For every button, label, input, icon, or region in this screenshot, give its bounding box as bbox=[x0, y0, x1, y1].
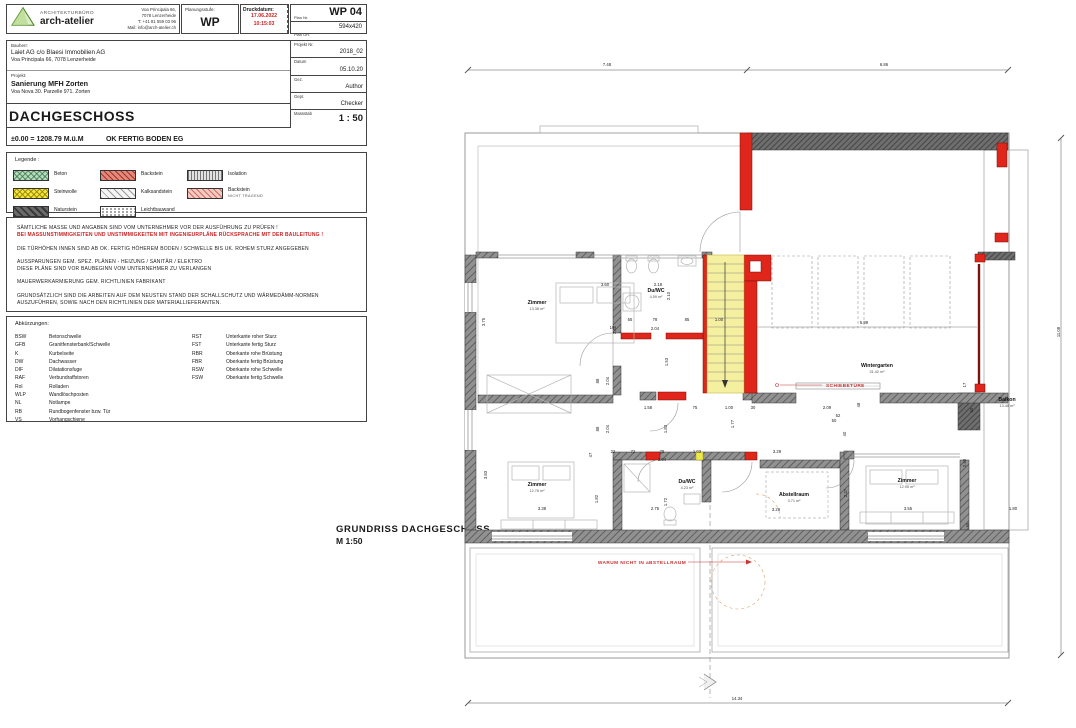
abbr-term: Vorhangschiene bbox=[49, 416, 85, 424]
dimension-label: 10 bbox=[610, 325, 615, 330]
room-name: Wintergarten bbox=[861, 363, 893, 369]
abbr-row: K Kurbelseite bbox=[15, 350, 110, 358]
dimension-label: 1.83 bbox=[663, 424, 668, 433]
abbr-row: DW Dachwasser bbox=[15, 358, 110, 366]
dimension-label: 3.60 bbox=[601, 282, 610, 287]
legend-box: Legende : Beton Backstein bbox=[6, 152, 367, 213]
bauherr-label: Bauherr: bbox=[11, 43, 286, 48]
dimension-labels: 7.486.8611.0814.343.602.183.752.412.1055… bbox=[481, 62, 1061, 701]
plan-nr-label: Plan Nr. bbox=[294, 15, 308, 20]
plan-gr-value: 594x420 bbox=[339, 24, 362, 30]
floor-plan-svg: SCHIEBETÜRE WARUM NICHT IN aBSTELLRAUM 7… bbox=[456, 50, 1076, 728]
dimension-label: 85 bbox=[685, 317, 690, 322]
elevation-note: OK FERTIG BODEN EG bbox=[106, 132, 183, 143]
bauherr-address: Voa Principala 66, 7078 Lenzerheide bbox=[11, 57, 286, 63]
abbr-code: FSW bbox=[192, 374, 226, 382]
material-swatch bbox=[13, 188, 49, 199]
room-label: Zimmer13.38 m² bbox=[528, 300, 547, 311]
dimension-label: 2.75 bbox=[651, 506, 660, 511]
dimension-label: 47 bbox=[588, 452, 593, 457]
projekt-section: Projekt: Sanierung MFH Zorten Voa Nova 3… bbox=[7, 71, 290, 104]
legend-label-text: Kalksandstein bbox=[141, 190, 172, 196]
abbr-code: RBR bbox=[192, 350, 226, 358]
meta-row: Gez. Author bbox=[291, 76, 367, 93]
bauherr-section: Bauherr: Laiet AG c/o Blaesi Immobilien … bbox=[7, 41, 290, 71]
meta-value: Checker bbox=[341, 101, 363, 107]
note-line: MAUERWERKARMIERUNG GEM. RICHTLINIEN FABR… bbox=[17, 279, 356, 286]
legend-label-text: Leichtbauwand bbox=[141, 208, 175, 214]
dimension-label: 2.40 bbox=[962, 458, 967, 467]
dimension-label: 7.48 bbox=[603, 62, 612, 67]
firm-title-cell: ARCHITEKTURBÜRO arch-atelier Voa Princip… bbox=[6, 4, 180, 34]
abbr-term: Oberkante fertig Brüstung bbox=[226, 358, 283, 366]
dimension-label: 2.04 bbox=[651, 326, 660, 331]
abbr-term: Verbundraffstoren bbox=[49, 374, 89, 382]
dimension-label: 3.55 bbox=[904, 506, 913, 511]
abbr-term: Unterkante roher Sturz bbox=[226, 333, 277, 341]
abbr-row: FBR Oberkante fertig Brüstung bbox=[192, 358, 283, 366]
elevation-row: ±0.00 = 1208.79 M.ü.M OK FERTIG BODEN EG bbox=[7, 128, 368, 147]
dimension-label: 2.04 bbox=[658, 457, 667, 462]
dimension-label: 1.00 bbox=[715, 317, 724, 322]
abbr-term: Granitfensterbank/Schwelle bbox=[49, 341, 110, 349]
abbr-code: RSW bbox=[192, 366, 226, 374]
note-line: DIESE PLÄNE SIND VOR BAUBEGINN VOM UNTER… bbox=[17, 266, 356, 273]
material-swatch bbox=[187, 170, 223, 181]
massstab-value: 1 : 50 bbox=[339, 113, 363, 124]
dimension-label: 3.29 bbox=[772, 507, 781, 512]
dimension-label: 1.00 bbox=[725, 405, 734, 410]
elevation-value: ±0.00 = 1208.79 M.ü.M bbox=[11, 132, 84, 143]
room-label: Wintergarten31.42 m² bbox=[861, 363, 893, 374]
floor-title-row: DACHGESCHOSS bbox=[7, 104, 290, 128]
plan-nr-value: WP 04 bbox=[329, 6, 362, 18]
room-name: Du/WC bbox=[648, 288, 665, 294]
abbr-term: Kurbelseite bbox=[49, 350, 74, 358]
abbr-term: Oberkante rohe Schwelle bbox=[226, 366, 282, 374]
abbr-code: DIF bbox=[15, 366, 49, 374]
room-area: 12.95 m² bbox=[900, 485, 916, 489]
legend-item: Backstein bbox=[100, 166, 187, 184]
abbr-code: FST bbox=[192, 341, 226, 349]
room-area: 3.71 m² bbox=[788, 499, 802, 503]
dimension-label: 3.83 bbox=[483, 470, 488, 479]
planungsstufe-cell: Planungsstufe: WP bbox=[181, 4, 239, 34]
note-line: BEI MASSUNSTIMMIGKEITEN UND UNSTIMMIGKEI… bbox=[17, 232, 356, 239]
dimension-label: 22 bbox=[611, 449, 616, 454]
abbr-row: BSW Betonschwelle bbox=[15, 333, 110, 341]
abbr-row: Rol Rolladen bbox=[15, 383, 110, 391]
abbr-column-left: BSW Betonschwelle GFB Granitfensterbank/… bbox=[15, 333, 110, 424]
dimension-label: 5.99 bbox=[860, 320, 869, 325]
firm-name-block: ARCHITEKTURBÜRO arch-atelier bbox=[40, 11, 94, 27]
legend-label: Naturstein bbox=[54, 208, 77, 214]
planungsstufe-value: WP bbox=[185, 15, 235, 29]
dimension-label: 48 bbox=[856, 402, 861, 407]
room-name: Zimmer bbox=[528, 300, 547, 306]
dimension-label: 75 bbox=[693, 405, 698, 410]
balcony-outline bbox=[984, 150, 1028, 530]
druckdatum-cell: Druckdatum: 17.06.2022 10:15:03 bbox=[240, 4, 289, 34]
dimension-label: 3.75 bbox=[481, 317, 486, 326]
legend-label-text: Backstein bbox=[141, 172, 163, 178]
legend-label: Backstein NICHT TRAGEND bbox=[228, 188, 263, 198]
massstab-cell: Massstab 1 : 50 bbox=[291, 110, 367, 127]
room-name: Zimmer bbox=[528, 482, 547, 488]
abbr-term: Rolladen bbox=[49, 383, 69, 391]
legend-label-text: Beton bbox=[54, 172, 67, 178]
abbr-code: Rol bbox=[15, 383, 49, 391]
abbr-row: VS Vorhangschiene bbox=[15, 416, 110, 424]
dimension-label: 2.04 bbox=[605, 376, 610, 385]
shaft-opening bbox=[750, 261, 761, 272]
abbr-code: K bbox=[15, 350, 49, 358]
note-line: AUSZUFÜHREN, SOWIE NACH DEN RICHTLINIEN … bbox=[17, 300, 356, 307]
dimension-label: 78 bbox=[660, 449, 665, 454]
firm-address: Voa Principala 66, 7078 Lenzerheide T: +… bbox=[127, 7, 176, 30]
skylight-grid bbox=[772, 256, 950, 328]
dimension-label: 3.29 bbox=[773, 449, 782, 454]
meta-label: Gez. bbox=[294, 77, 303, 82]
abbr-code: VS bbox=[15, 416, 49, 424]
abbr-term: Dachwasser bbox=[49, 358, 77, 366]
dimension-label: 2.18 bbox=[654, 282, 663, 287]
note-line: AUSSPARUNGEN GEM. SPEZ. PLÄNEN - HEIZUNG… bbox=[17, 259, 356, 266]
druckdatum-time: 10:15:03 bbox=[243, 21, 285, 29]
meta-label: Datum bbox=[294, 59, 306, 64]
plan-number-cell: Plan Nr. WP 04 Plan GR. 594x420 bbox=[290, 4, 367, 34]
projekt-label: Projekt: bbox=[11, 73, 286, 78]
legend-label-text: Steinwolle bbox=[54, 190, 77, 196]
room-label: Abstellraum3.71 m² bbox=[779, 492, 809, 503]
abbreviations-title: Abkürzungen: bbox=[7, 317, 366, 330]
dimension-label: 55 bbox=[628, 317, 633, 322]
legend-item: Steinwolle bbox=[13, 184, 100, 202]
material-swatch bbox=[100, 206, 136, 217]
abbr-row: RSW Oberkante rohe Schwelle bbox=[192, 366, 283, 374]
abbreviations-box: Abkürzungen: BSW Betonschwelle GFB Grani… bbox=[6, 316, 367, 422]
legend-label: Isolation bbox=[228, 172, 247, 178]
room-label: Zimmer12.76 m² bbox=[528, 482, 547, 493]
material-swatch bbox=[187, 188, 223, 199]
abbr-row: FSW Oberkante fertig Schwelle bbox=[192, 374, 283, 382]
meta-row: Gepr. Checker bbox=[291, 93, 367, 110]
room-name: Zimmer bbox=[898, 478, 917, 484]
notes-list: SÄMTLICHE MASSE UND ANGABEN SIND VOM UNT… bbox=[7, 218, 366, 314]
dimension-label: 88 bbox=[595, 426, 600, 431]
toilet bbox=[626, 256, 637, 261]
dimension-label: 1.72 bbox=[663, 497, 668, 506]
dimension-label: 52 bbox=[836, 413, 841, 418]
warum-label: WARUM NICHT IN aBSTELLRAUM bbox=[598, 560, 686, 566]
project-block: Bauherr: Laiet AG c/o Blaesi Immobilien … bbox=[6, 40, 367, 146]
meta-row: Datum 05.10.20 bbox=[291, 58, 367, 75]
abbr-row: NL Notlampe bbox=[15, 399, 110, 407]
legend-item: Beton bbox=[13, 166, 100, 184]
room-area: 4.59 m² bbox=[650, 295, 664, 299]
abbr-code: RST bbox=[192, 333, 226, 341]
abbr-code: BSW bbox=[15, 333, 49, 341]
room-label: Du/WC4.59 m² bbox=[648, 288, 665, 299]
dimension-label: 14.34 bbox=[732, 696, 743, 701]
dimension-label: 50 bbox=[832, 418, 837, 423]
dimension-label: 1.77 bbox=[730, 419, 735, 428]
dimension-label: 2.10 bbox=[666, 291, 671, 300]
room-area: 12.76 m² bbox=[530, 489, 546, 493]
note-line: GRUNDSÄTZLICH SIND DIE ARBEITEN AUF DEM … bbox=[17, 293, 356, 300]
meta-value: Author bbox=[345, 84, 363, 90]
dimension-lines bbox=[465, 67, 1064, 706]
legend-label: Steinwolle bbox=[54, 190, 77, 196]
firm-logo-icon bbox=[10, 6, 36, 33]
shower bbox=[623, 293, 641, 311]
projekt-name: Sanierung MFH Zorten bbox=[11, 79, 286, 88]
material-swatch bbox=[13, 170, 49, 181]
abbr-code: DW bbox=[15, 358, 49, 366]
dimension-label: 11.08 bbox=[1056, 326, 1061, 337]
abbr-term: Notlampe bbox=[49, 399, 70, 407]
dimension-label: 2.09 bbox=[823, 405, 832, 410]
dimension-label: 65 bbox=[965, 522, 970, 527]
dimension-label: 1.53 bbox=[664, 357, 669, 366]
firm-address-line: Mail: info@arch-atelier.ch bbox=[127, 25, 176, 31]
abbr-row: FST Unterkante fertig Sturz bbox=[192, 341, 283, 349]
material-swatch bbox=[100, 188, 136, 199]
abbr-row: GFB Granitfensterbank/Schwelle bbox=[15, 341, 110, 349]
abbr-row: WLP Wandlöschposten bbox=[15, 391, 110, 399]
dimension-label: 78 bbox=[653, 317, 658, 322]
schiebetuere-label: SCHIEBETÜRE bbox=[826, 382, 865, 389]
material-swatch bbox=[100, 170, 136, 181]
room-label: Zimmer12.95 m² bbox=[898, 478, 917, 489]
projekt-address: Voa Nova 30. Parzelle 971. Zorten bbox=[11, 89, 286, 95]
dimension-label: 72 bbox=[631, 449, 636, 454]
room-area: 13.48 m² bbox=[1000, 404, 1016, 408]
meta-value: 2018_02 bbox=[340, 49, 363, 55]
meta-rows: Projekt Nr. 2018_02 Datum 05.10.20 Gez. … bbox=[291, 41, 367, 110]
abbr-term: Wandlöschposten bbox=[49, 391, 89, 399]
abbr-term: Unterkante fertig Sturz bbox=[226, 341, 276, 349]
legend-item: Backstein NICHT TRAGEND bbox=[187, 184, 274, 202]
room-area: 13.38 m² bbox=[530, 307, 546, 311]
dimension-label: 40 bbox=[842, 431, 847, 436]
room-name: Du/WC bbox=[679, 479, 696, 485]
toilet bbox=[664, 507, 676, 521]
abbr-row: RB Rundbogenfenster bzw. Tür bbox=[15, 408, 110, 416]
abbr-code: RB bbox=[15, 408, 49, 416]
legend-label-text: Naturstein bbox=[54, 208, 77, 214]
abbr-code: RAF bbox=[15, 374, 49, 382]
naturstein-wall bbox=[747, 133, 1008, 150]
abbr-code: FBR bbox=[192, 358, 226, 366]
room-name: Abstellraum bbox=[779, 492, 809, 498]
abbr-term: Oberkante rohe Brüstung bbox=[226, 350, 282, 358]
legend-label: Leichtbauwand bbox=[141, 208, 175, 214]
dimension-label: 1.80 bbox=[1009, 506, 1018, 511]
abbr-code: GFB bbox=[15, 341, 49, 349]
abbr-row: DIF Dilatationsfuge bbox=[15, 366, 110, 374]
abbr-term: Dilatationsfuge bbox=[49, 366, 82, 374]
notes-box: SÄMTLICHE MASSE UND ANGABEN SIND VOM UNT… bbox=[6, 217, 367, 312]
note-line: DIE TÜRHÖHEN INNEN SIND AB OK. FERTIG HÖ… bbox=[17, 246, 356, 253]
firm-name: arch-atelier bbox=[40, 16, 94, 27]
bauherr-name: Laiet AG c/o Blaesi Immobilien AG bbox=[11, 49, 286, 56]
room-area: 31.42 m² bbox=[870, 370, 886, 374]
room-area: 4.23 m² bbox=[681, 486, 695, 490]
abbr-code: WLP bbox=[15, 391, 49, 399]
staircase bbox=[707, 255, 744, 393]
annotation-arrow-icon bbox=[746, 560, 752, 565]
legend-sublabel: NICHT TRAGEND bbox=[228, 194, 263, 198]
dimension-label: 6.86 bbox=[880, 62, 889, 67]
bed bbox=[866, 466, 948, 524]
legend-label-text: Isolation bbox=[228, 172, 247, 178]
abbr-row: RAF Verbundraffstoren bbox=[15, 374, 110, 382]
dimension-label: 17 bbox=[962, 382, 967, 387]
abbr-term: Rundbogenfenster bzw. Tür bbox=[49, 408, 110, 416]
room-label: Balkon13.48 m² bbox=[998, 397, 1015, 408]
dimension-label: 1.82 bbox=[594, 494, 599, 503]
meta-value: 05.10.20 bbox=[340, 67, 363, 73]
dimension-label: 2.04 bbox=[605, 424, 610, 433]
legend-grid: Beton Backstein Isolation bbox=[7, 165, 366, 221]
planungsstufe-label: Planungsstufe: bbox=[185, 7, 235, 12]
abbr-column-right: RST Unterkante roher Sturz FST Unterkant… bbox=[192, 333, 283, 383]
legend-title: Legende : bbox=[7, 153, 366, 165]
dimension-label: 2.37 bbox=[843, 488, 848, 497]
dimension-label: 88 bbox=[595, 378, 600, 383]
dimension-label: 1.03 bbox=[693, 449, 702, 454]
toilet bbox=[648, 256, 659, 261]
room-name: Balkon bbox=[998, 397, 1015, 403]
meta-label: Projekt Nr. bbox=[294, 42, 314, 47]
meta-label: Gepr. bbox=[294, 94, 304, 99]
room-label: Du/WC4.23 m² bbox=[679, 479, 696, 490]
dimension-label: 30 bbox=[751, 405, 756, 410]
plan-gr-label: Plan GR. bbox=[294, 32, 310, 37]
floor-title: DACHGESCHOSS bbox=[7, 104, 290, 124]
meta-column: Projekt Nr. 2018_02 Datum 05.10.20 Gez. … bbox=[290, 41, 367, 128]
abbr-term: Oberkante fertig Schwelle bbox=[226, 374, 283, 382]
dimension-label: 1.58 bbox=[644, 405, 653, 410]
legend-item: Kalksandstein bbox=[100, 184, 187, 202]
dimension-label: 3.38 bbox=[538, 506, 547, 511]
abbr-term: Betonschwelle bbox=[49, 333, 81, 341]
abbr-code: NL bbox=[15, 399, 49, 407]
dimension-label: 60 bbox=[969, 407, 974, 412]
sink bbox=[684, 494, 700, 504]
plan-sheet: ARCHITEKTURBÜRO arch-atelier Voa Princip… bbox=[0, 0, 1076, 728]
abbr-row: RBR Oberkante rohe Brüstung bbox=[192, 350, 283, 358]
legend-label: Kalksandstein bbox=[141, 190, 172, 196]
legend-label: Beton bbox=[54, 172, 67, 178]
legend-item: Isolation bbox=[187, 166, 274, 184]
clearance-circles bbox=[711, 494, 780, 609]
legend-label: Backstein bbox=[141, 172, 163, 178]
material-swatch bbox=[13, 206, 49, 217]
abbr-row: RST Unterkante roher Sturz bbox=[192, 333, 283, 341]
massstab-label: Massstab bbox=[294, 111, 312, 116]
meta-row: Projekt Nr. 2018_02 bbox=[291, 41, 367, 58]
druckdatum-date: 17.06.2022 bbox=[243, 13, 285, 21]
